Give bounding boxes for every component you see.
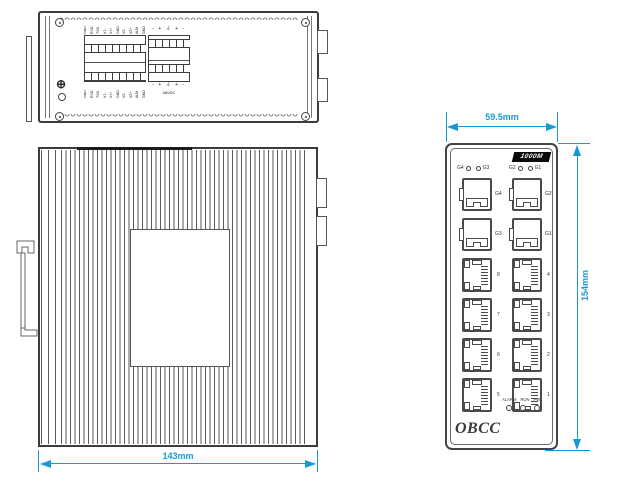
rj45-port[interactable] xyxy=(462,298,492,332)
led-label: G3 xyxy=(483,166,490,171)
arrow-right-icon xyxy=(305,460,316,468)
rj45-port-number: 4 xyxy=(547,273,550,278)
terminal-label: V2- xyxy=(123,19,127,34)
terminal-label: V1- xyxy=(104,83,108,98)
rj45-port-number: 2 xyxy=(547,353,550,358)
rear-view-mount-tab xyxy=(316,178,327,208)
run-led xyxy=(520,405,526,411)
run-led-label: RUN xyxy=(520,398,529,402)
dimension-line xyxy=(42,463,315,464)
sfp-port[interactable] xyxy=(462,178,492,211)
top-view-body: ⊕ GND RXD TXD V1- V1+ GND V2- V2+ ALM GN… xyxy=(38,11,319,123)
terminal-label: TXD xyxy=(97,83,101,98)
terminal-label: V1+ xyxy=(110,83,114,98)
extension-line xyxy=(317,450,318,472)
terminal-label: GND xyxy=(117,83,121,98)
terminal-label: V2+ xyxy=(130,83,134,98)
status-led-indicators xyxy=(506,405,540,411)
panel-width-dimension: 59.5mm xyxy=(448,113,556,122)
rj45-port[interactable] xyxy=(462,338,492,372)
sfp-led-group-right: G2 G1 xyxy=(509,166,541,171)
right-wall-lines xyxy=(307,16,312,118)
pw-led-label: PW xyxy=(534,398,541,402)
extension-line xyxy=(545,450,590,451)
sfp-led-group-left: G4 G3 xyxy=(457,166,489,171)
top-view-mount-tab xyxy=(317,78,328,102)
divider-line xyxy=(149,60,189,61)
led-indicator xyxy=(476,166,481,171)
ground-screw-icon: ⊕ xyxy=(56,78,66,90)
sfp-port-label: G2 xyxy=(545,192,552,197)
dimension-line xyxy=(449,126,555,127)
led-label: G4 xyxy=(457,166,464,171)
terminal-label: V2+ xyxy=(130,19,134,34)
arrow-down-icon xyxy=(573,439,581,450)
terminal-screws-row xyxy=(84,72,146,81)
switch-dimension-drawing: ⊕ GND RXD TXD V1- V1+ GND V2- V2+ ALM GN… xyxy=(0,0,618,489)
rj45-port-number: 5 xyxy=(497,393,500,398)
sfp-port-label: G4 xyxy=(495,192,502,197)
terminal-label: V1- xyxy=(104,19,108,34)
rj45-port[interactable] xyxy=(462,258,492,292)
din-rail-clip xyxy=(8,240,40,348)
terminal-label: GND xyxy=(84,83,88,98)
terminal-label: TXD xyxy=(97,19,101,34)
power-polarity-marks-bottom: - + ⏚ + - xyxy=(146,83,192,88)
rj45-port[interactable] xyxy=(512,258,542,292)
rj45-port-number: 6 xyxy=(497,353,500,358)
arrow-right-icon xyxy=(546,123,557,131)
arrow-left-icon xyxy=(447,123,458,131)
sfp-port-label: G3 xyxy=(495,232,502,237)
front-panel-body: 1000M G4 G3 G2 G1 G4 G2 G3 G1 8 4 7 xyxy=(445,143,558,450)
terminal-label: ALM xyxy=(136,83,140,98)
sfp-port-label: G1 xyxy=(545,232,552,237)
terminal-label: GND xyxy=(84,19,88,34)
rj45-port[interactable] xyxy=(462,378,492,412)
power-rating-caption: 48VDC xyxy=(146,91,192,95)
led-indicator xyxy=(466,166,471,171)
corner-screw-icon xyxy=(55,112,64,121)
heatsink-side-wall xyxy=(41,150,61,444)
terminal-label: GND xyxy=(117,19,121,34)
led-label: G2 xyxy=(509,166,516,171)
rear-width-dimension: 143mm xyxy=(40,452,316,461)
rear-view-body xyxy=(38,147,318,447)
top-view-din-rail-edge xyxy=(26,36,32,122)
rj45-port-number: 7 xyxy=(497,313,500,318)
led-indicator xyxy=(528,166,533,171)
rj45-port-number: 1 xyxy=(547,393,550,398)
power-polarity-marks-top: - + ⏚ + - xyxy=(146,27,192,32)
sfp-port[interactable] xyxy=(512,178,542,211)
top-edge-segment xyxy=(77,147,192,150)
rj45-port[interactable] xyxy=(512,338,542,372)
led-label: G1 xyxy=(535,166,542,171)
panel-height-dimension: 154mm xyxy=(581,270,590,301)
led-indicator xyxy=(518,166,523,171)
reset-hole xyxy=(58,93,66,101)
terminal-label: RXD xyxy=(91,83,95,98)
speed-badge: 1000M xyxy=(512,152,551,162)
bottom-fin-edge xyxy=(58,114,299,119)
extension-line xyxy=(38,450,39,472)
sfp-port[interactable] xyxy=(462,218,492,251)
left-wall-lines xyxy=(45,16,50,118)
extension-line xyxy=(557,112,558,142)
terminal-screws-row xyxy=(84,44,146,53)
divider-line xyxy=(85,62,145,63)
status-led-labels: ALARM RUN PW xyxy=(502,398,540,402)
brand-logo: OBCC xyxy=(455,421,501,437)
terminal-top-labels: GND RXD TXD V1- V1+ GND V2- V2+ ALM GND xyxy=(84,19,146,34)
corner-screw-icon xyxy=(301,112,310,121)
label-plate xyxy=(130,229,230,367)
terminal-label: RXD xyxy=(91,19,95,34)
alarm-led-label: ALARM xyxy=(502,398,516,402)
rear-view-mount-tab xyxy=(316,216,327,246)
extension-line xyxy=(558,143,590,144)
power-terminal-block xyxy=(148,35,190,82)
io-terminal-block xyxy=(84,35,146,82)
rj45-port-number: 3 xyxy=(547,313,550,318)
top-view-mount-tab xyxy=(317,30,328,54)
dimension-line xyxy=(577,150,578,444)
terminal-label: V1+ xyxy=(110,19,114,34)
rj45-port[interactable] xyxy=(512,298,542,332)
terminal-screws-row xyxy=(148,64,190,73)
corner-screw-icon xyxy=(55,18,64,27)
terminal-bottom-labels: GND RXD TXD V1- V1+ GND V2- V2+ ALM GND xyxy=(84,83,146,98)
terminal-label: V2- xyxy=(123,83,127,98)
pw-led xyxy=(534,405,540,411)
arrow-left-icon xyxy=(40,460,51,468)
terminal-screws-row xyxy=(148,39,190,48)
alarm-led xyxy=(506,405,512,411)
terminal-label: ALM xyxy=(136,19,140,34)
sfp-port[interactable] xyxy=(512,218,542,251)
rj45-port-number: 8 xyxy=(497,273,500,278)
arrow-up-icon xyxy=(573,145,581,156)
corner-screw-icon xyxy=(301,18,310,27)
